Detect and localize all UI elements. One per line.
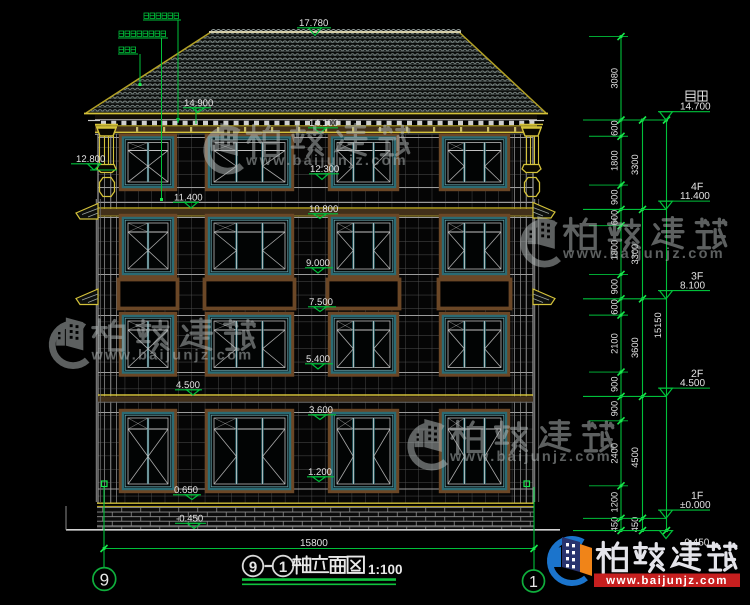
svg-text:3600: 3600 (630, 337, 640, 358)
svg-text:1800: 1800 (610, 150, 620, 171)
svg-text:www.baijunjz.com: www.baijunjz.com (449, 449, 612, 465)
svg-text:900: 900 (610, 279, 620, 295)
svg-text:450: 450 (630, 517, 640, 533)
svg-text:www.baijunjz.com: www.baijunjz.com (91, 348, 254, 364)
svg-text:9: 9 (100, 571, 109, 590)
svg-text:14.700: 14.700 (680, 102, 711, 113)
svg-text:www.baijunjz.com: www.baijunjz.com (245, 153, 408, 169)
svg-text:4500: 4500 (630, 447, 640, 468)
svg-text:450: 450 (610, 517, 620, 533)
svg-text:www.baijunjz.com: www.baijunjz.com (562, 246, 725, 262)
svg-text:1: 1 (279, 559, 287, 576)
svg-text:3080: 3080 (610, 68, 620, 89)
svg-text:www.baijunjz.com: www.baijunjz.com (605, 575, 728, 587)
svg-text:9: 9 (249, 559, 257, 576)
svg-text:15800: 15800 (300, 538, 328, 549)
svg-text:900: 900 (610, 189, 620, 205)
svg-text:4.500: 4.500 (680, 378, 705, 389)
svg-text:1200: 1200 (610, 492, 620, 513)
svg-text:8.100: 8.100 (680, 280, 705, 291)
svg-text:3300: 3300 (630, 154, 640, 175)
svg-text:15150: 15150 (653, 312, 663, 338)
svg-text:±0.000: ±0.000 (680, 500, 711, 511)
svg-text:900: 900 (610, 401, 620, 417)
svg-text:600: 600 (610, 120, 620, 136)
svg-text:11.400: 11.400 (680, 191, 710, 202)
svg-text:2100: 2100 (610, 333, 620, 354)
svg-text:1:100: 1:100 (368, 562, 403, 577)
svg-text:1: 1 (529, 574, 538, 591)
svg-text:600: 600 (610, 299, 620, 315)
svg-text:900: 900 (610, 376, 620, 392)
